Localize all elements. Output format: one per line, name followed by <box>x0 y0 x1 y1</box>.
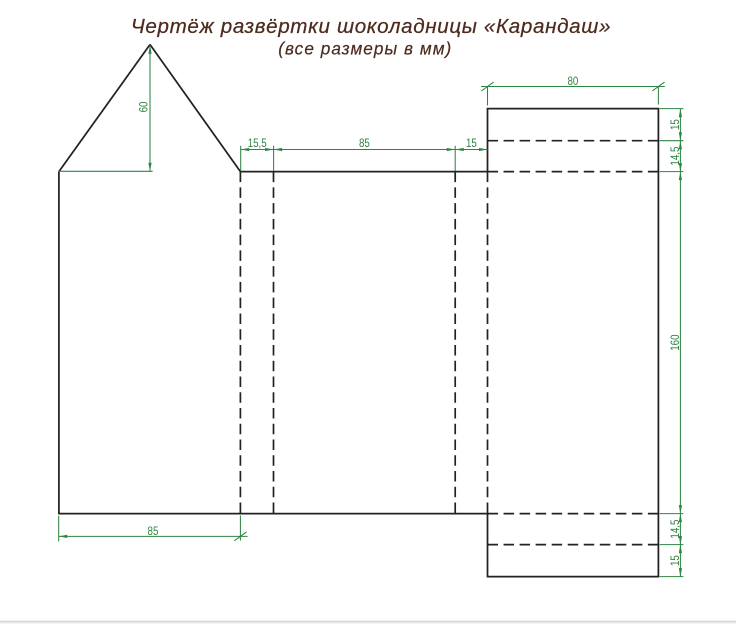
svg-text:60: 60 <box>138 102 151 113</box>
svg-text:85: 85 <box>148 525 159 538</box>
svg-text:15: 15 <box>466 137 477 150</box>
svg-text:15,5: 15,5 <box>248 137 267 150</box>
svg-text:14,5: 14,5 <box>669 520 682 539</box>
svg-text:80: 80 <box>567 75 578 88</box>
svg-text:15: 15 <box>669 119 682 130</box>
svg-text:(все размеры в мм): (все размеры в мм) <box>278 39 452 59</box>
svg-text:160: 160 <box>669 334 682 350</box>
svg-text:85: 85 <box>359 137 370 150</box>
svg-text:15: 15 <box>669 555 682 566</box>
svg-text:14,5: 14,5 <box>669 147 682 166</box>
svg-text:Чертёж развёртки шоколадницы «: Чертёж развёртки шоколадницы «Карандаш» <box>131 15 611 38</box>
